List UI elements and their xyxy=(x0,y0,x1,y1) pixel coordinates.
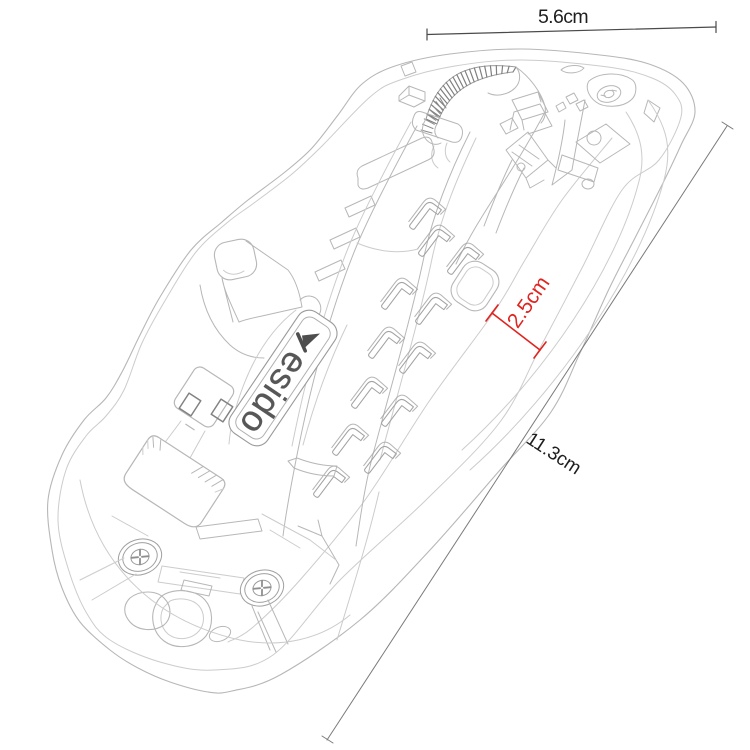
svg-text:2.5cm: 2.5cm xyxy=(503,272,555,332)
svg-text:11.3cm: 11.3cm xyxy=(522,429,585,480)
svg-text:esido: esido xyxy=(231,344,316,443)
svg-text:5.6cm: 5.6cm xyxy=(538,6,588,28)
